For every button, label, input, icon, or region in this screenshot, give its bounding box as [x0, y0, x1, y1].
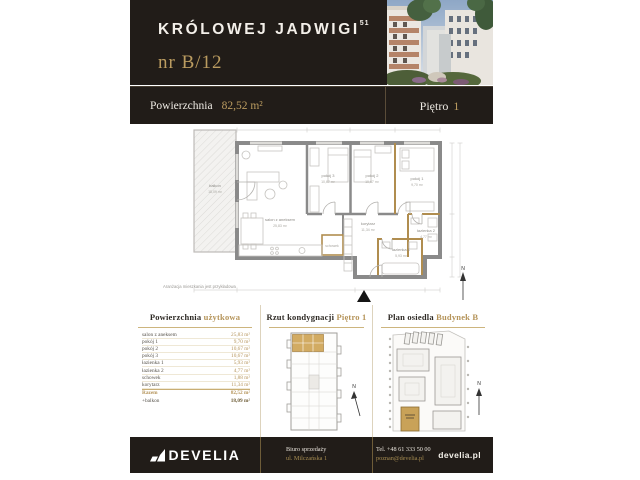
- north-arrow: N: [351, 384, 360, 416]
- area-cell: Powierzchnia 82,52 m²: [130, 87, 385, 125]
- table-row: pokój 310,67 m²: [142, 353, 250, 360]
- salon-area: 25,83 m²: [273, 224, 288, 228]
- storage-label: schowek: [325, 244, 339, 248]
- floor-value: 1: [453, 99, 459, 114]
- siteplan-heading-text: Plan osiedla: [388, 312, 434, 322]
- room3-area: 10,67 m²: [321, 180, 336, 184]
- highlighted-building: [401, 407, 419, 431]
- table-balcony-row: +balkon 18,09 m²: [142, 397, 250, 405]
- area-value: 82,52 m²: [222, 100, 263, 112]
- floor-plan: balkon 18,09 m²: [130, 124, 493, 305]
- row-label: salon z aneksem: [142, 332, 177, 338]
- project-title: KRÓLOWEJ JADWIGI51: [158, 20, 370, 39]
- contact-block: Tel. +48 61 333 50 00 poznan@develia.pl: [376, 445, 431, 463]
- unit-number: nr B/12: [158, 52, 223, 74]
- hall-label: korytarz: [361, 221, 375, 226]
- balcony-area-label: 18,09 m²: [208, 190, 223, 194]
- footer: DEVELIA Biuro sprzedaży ul. Milczańska 1…: [130, 437, 493, 473]
- row-value: 25,83 m²: [231, 332, 250, 338]
- row-label: pokój 1: [142, 339, 158, 345]
- usable-area-column: Powierzchnia użytkowa salon z aneksem25,…: [130, 305, 260, 437]
- balcony-row-value: 18,09 m²: [231, 398, 250, 404]
- website-url: develia.pl: [438, 450, 481, 460]
- project-title-text: KRÓLOWEJ JADWIGI: [158, 21, 360, 38]
- room1-label: pokój 1: [411, 176, 425, 181]
- table-row: korytarz11,34 m²: [142, 382, 250, 389]
- floorplate-heading-accent: Piętro 1: [336, 312, 366, 322]
- heading-rule: [269, 327, 364, 328]
- phone-number: Tel. +48 61 333 50 00: [376, 445, 431, 454]
- develia-logo-icon: [150, 449, 165, 462]
- footer-divider: [260, 437, 261, 473]
- salon-label: salon z aneksem: [265, 217, 296, 222]
- row-value: 11,34 m²: [231, 382, 250, 388]
- bath2-label: łazienka 2: [417, 228, 436, 233]
- row-value: 10,67 m²: [231, 353, 250, 359]
- balcony-label: balkon: [209, 183, 221, 188]
- bath1-label: łazienka 1: [392, 247, 411, 252]
- usable-area-heading-accent: użytkowa: [204, 312, 241, 322]
- area-table-body: salon z aneksem25,83 m²pokój 19,70 m²pok…: [142, 332, 250, 389]
- row-label: pokój 3: [142, 353, 158, 359]
- row-value: 10,67 m²: [231, 346, 250, 352]
- siteplan-heading: Plan osiedla Budynek B: [373, 305, 493, 322]
- row-label: korytarz: [142, 382, 160, 388]
- apartment-card: KRÓLOWEJ JADWIGI51 nr B/12: [0, 0, 640, 480]
- heading-rule: [138, 327, 252, 328]
- total-label: Razem: [142, 390, 158, 396]
- apartment-outline: [237, 143, 440, 277]
- bath2-area: 4,77 m²: [420, 235, 433, 239]
- table-row: pokój 210,67 m²: [142, 346, 250, 353]
- north-arrow: N: [460, 266, 466, 300]
- room3-label: pokój 3: [322, 173, 336, 178]
- row-value: 4,77 m²: [234, 368, 250, 374]
- usable-area-heading-text: Powierzchnia: [150, 312, 202, 322]
- siteplan-heading-accent: Budynek B: [436, 312, 478, 322]
- table-row: pokój 19,70 m²: [142, 339, 250, 346]
- row-value: 9,70 m²: [234, 339, 250, 345]
- floor-cell: Piętro 1: [385, 87, 493, 125]
- info-bar: Powierzchnia 82,52 m² Piętro 1: [130, 86, 493, 124]
- area-label: Powierzchnia: [150, 100, 213, 112]
- project-title-sup: 51: [360, 20, 370, 27]
- svg-text:N: N: [477, 381, 481, 387]
- develia-logo: DEVELIA: [130, 437, 260, 473]
- row-label: schowek: [142, 375, 161, 381]
- room2-area: 10,67 m²: [365, 180, 380, 184]
- svg-text:N: N: [461, 266, 465, 272]
- table-row: łazienka 24,77 m²: [142, 367, 250, 374]
- office-address: ul. Milczańska 1: [286, 454, 327, 463]
- floorplate-column: Rzut kondygnacji Piętro 1: [260, 305, 372, 437]
- office-label: Biuro sprzedaży: [286, 445, 327, 454]
- north-arrow: N: [476, 381, 482, 415]
- floorplate-heading: Rzut kondygnacji Piętro 1: [261, 305, 372, 322]
- hall-area: 11,34 m²: [361, 228, 375, 232]
- floor-label: Piętro: [420, 99, 449, 114]
- row-value: 1,88 m²: [234, 375, 250, 381]
- sales-office-block: Biuro sprzedaży ul. Milczańska 1: [286, 445, 327, 463]
- svg-text:N: N: [352, 384, 356, 390]
- floorplate-diagram: N: [261, 330, 373, 437]
- area-table: salon z aneksem25,83 m²pokój 19,70 m²pok…: [142, 332, 250, 405]
- siteplan-diagram: N: [373, 327, 494, 437]
- table-total-row: Razem 82,52 m²: [142, 389, 250, 397]
- info-section: Powierzchnia użytkowa salon z aneksem25,…: [130, 305, 493, 437]
- total-value: 82,52 m²: [231, 390, 250, 396]
- header-panel: KRÓLOWEJ JADWIGI51 nr B/12: [130, 0, 493, 85]
- entrance-marker: [357, 290, 371, 302]
- table-row: salon z aneksem25,83 m²: [142, 332, 250, 339]
- bath1-area: 5,93 m²: [395, 254, 408, 258]
- table-row: schowek1,88 m²: [142, 375, 250, 382]
- usable-area-heading: Powierzchnia użytkowa: [130, 305, 260, 322]
- room1-area: 9,70 m²: [411, 183, 424, 187]
- email-address: poznan@develia.pl: [376, 454, 431, 463]
- siteplan-column: Plan osiedla Budynek B: [372, 305, 493, 437]
- building-photo: [387, 0, 493, 85]
- room2-label: pokój 2: [366, 173, 380, 178]
- plan-disclaimer: Aranżacja mieszkania jest przykładowa: [163, 284, 237, 289]
- balcony-row-label: +balkon: [142, 398, 159, 404]
- row-value: 5,93 m²: [234, 360, 250, 366]
- floorplate-heading-text: Rzut kondygnacji: [266, 312, 334, 322]
- row-label: pokój 2: [142, 346, 158, 352]
- develia-logo-text: DEVELIA: [169, 447, 241, 463]
- footer-divider: [372, 437, 373, 473]
- floor-plan-drawing: balkon 18,09 m²: [130, 124, 493, 305]
- row-label: łazienka 1: [142, 360, 164, 366]
- card-content: KRÓLOWEJ JADWIGI51 nr B/12: [130, 0, 493, 480]
- building-photo-art: [387, 0, 493, 85]
- row-label: łazienka 2: [142, 368, 164, 374]
- table-row: łazienka 15,93 m²: [142, 360, 250, 367]
